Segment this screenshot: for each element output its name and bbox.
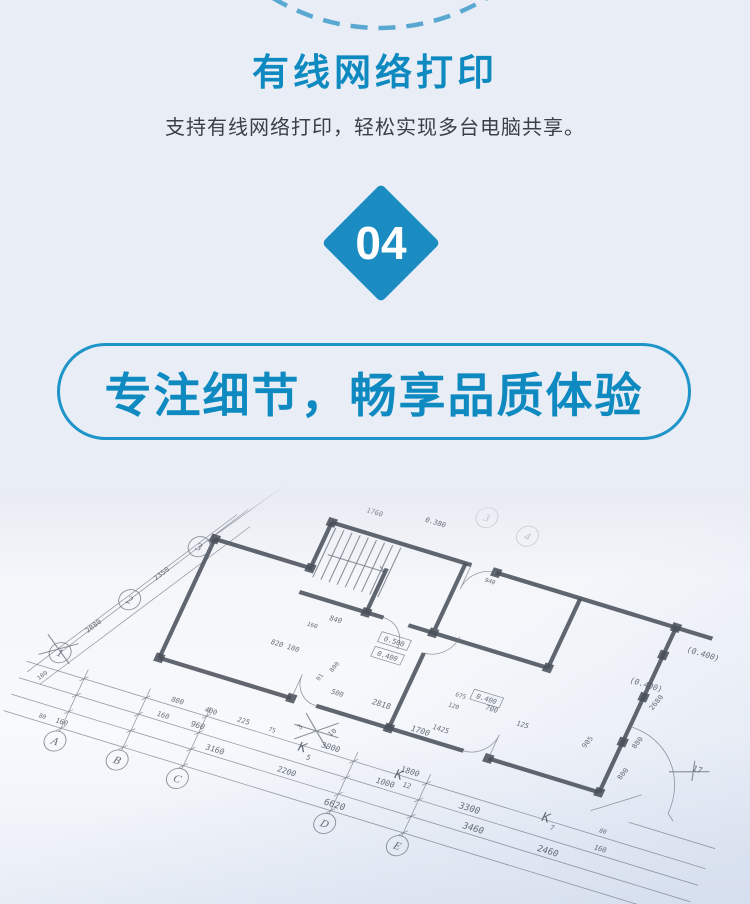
section-subtitle: 支持有线网络打印，轻松实现多台电脑共享。	[0, 111, 750, 140]
dashed-arc-decoration	[0, 0, 750, 40]
product-detail-page: 有线网络打印 支持有线网络打印，轻松实现多台电脑共享。 04 专注细节，畅享品质…	[0, 0, 750, 904]
section-title: 有线网络打印	[0, 42, 750, 96]
banner-pill: 专注细节，畅享品质体验	[57, 343, 691, 440]
banner-text: 专注细节，畅享品质体验	[105, 357, 644, 426]
blueprint-floor-plan-image: ABCDE12334 80160662031602200346024601609…	[0, 486, 750, 904]
blueprint-top-fade	[0, 486, 750, 606]
dashed-circle	[174, 0, 586, 28]
step-number-badge: 04	[322, 184, 441, 303]
step-number-text: 04	[339, 201, 423, 285]
